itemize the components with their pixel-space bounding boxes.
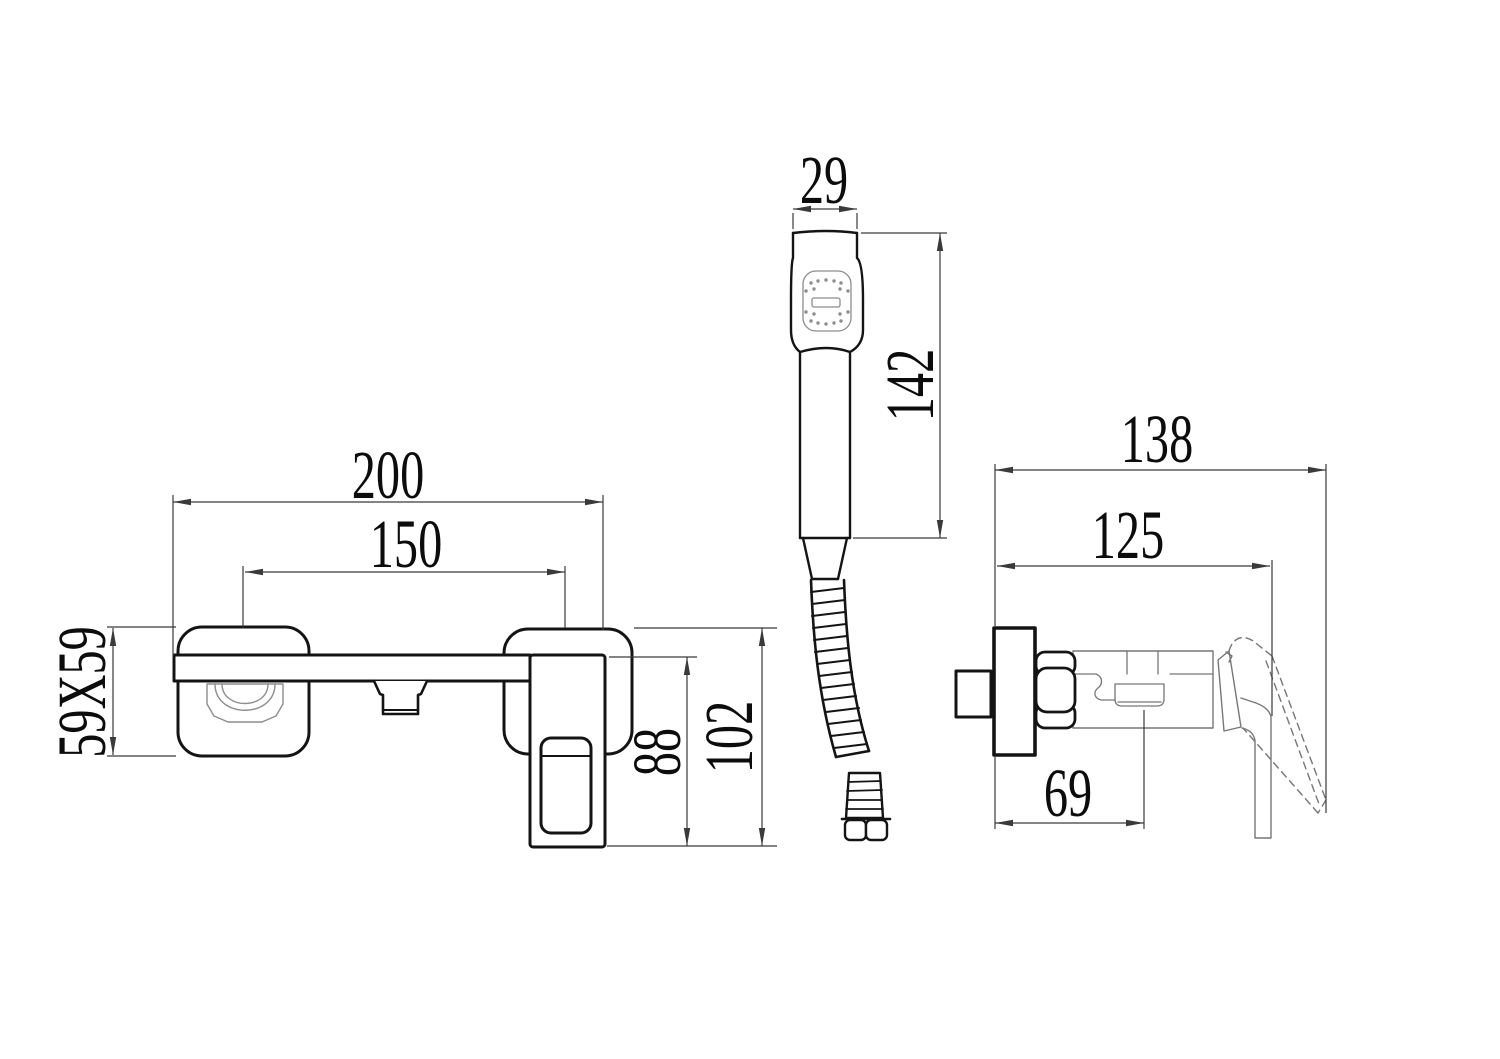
hose-fitting xyxy=(842,773,890,840)
front-view xyxy=(174,627,632,847)
handle-base xyxy=(1218,651,1241,731)
valve-body-side xyxy=(1073,651,1213,728)
hose-cone xyxy=(803,538,847,579)
spray-nozzle-dots xyxy=(804,278,849,325)
dim-label-138: 138 xyxy=(1121,401,1193,477)
dim-label-150: 150 xyxy=(370,506,442,582)
mounting-bar xyxy=(174,655,530,681)
fitting-nut-right xyxy=(866,820,887,840)
drawing-canvas: 200 150 59X59 88 102 29 142 138 125 69 xyxy=(0,0,1500,1059)
escutcheon-left xyxy=(178,627,309,756)
dim-label-59x59: 59X59 xyxy=(44,626,120,757)
wall-supply-stub xyxy=(956,671,991,717)
spray-face xyxy=(803,271,851,331)
dim-label-88: 88 xyxy=(619,728,695,776)
fitting-nut-left xyxy=(845,820,866,840)
dim-label-102: 102 xyxy=(691,701,767,773)
dim-label-69: 69 xyxy=(1044,755,1092,831)
dim-label-29: 29 xyxy=(800,142,848,218)
handle-arm xyxy=(1241,698,1271,838)
hand-shower-outline xyxy=(791,231,863,538)
handle-front xyxy=(541,738,591,833)
hex-nut-side xyxy=(1036,652,1075,728)
hand-shower-view xyxy=(791,231,890,840)
shower-hose xyxy=(811,580,869,757)
side-view xyxy=(956,628,1326,838)
mixer-technical-drawing: 200 150 59X59 88 102 29 142 138 125 69 xyxy=(0,0,1500,1059)
dim-label-142: 142 xyxy=(872,349,948,421)
escutcheon-side xyxy=(994,628,1035,755)
hose-ribs xyxy=(811,588,867,748)
handle-side xyxy=(1218,651,1271,838)
dim-label-125: 125 xyxy=(1092,497,1164,573)
spray-slot xyxy=(812,298,840,307)
dim-label-200: 200 xyxy=(352,437,424,513)
